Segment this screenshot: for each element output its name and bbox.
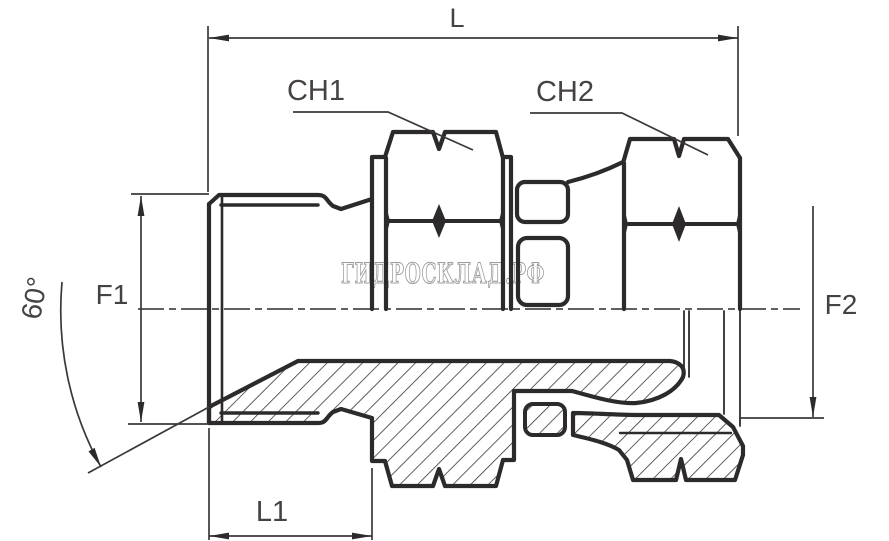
dim-hex1-wrench-label: CH1	[287, 75, 345, 107]
cone-construction-line	[88, 407, 209, 473]
arrow-L-right	[718, 35, 738, 42]
arrow-L1-left	[209, 533, 229, 540]
section-lower-half	[209, 309, 743, 486]
nut-section	[573, 413, 743, 480]
arrow-F1-up	[138, 196, 145, 216]
arrow-F1-down	[138, 402, 145, 422]
nut-nose-cone	[568, 162, 623, 182]
dim-stud-length-label: L1	[256, 496, 288, 528]
dim-hex2-wrench-label: CH2	[536, 76, 594, 108]
arrow-L1-right	[352, 533, 372, 540]
stud-outline	[209, 195, 372, 209]
through-hole-lines	[684, 311, 740, 426]
hex1-top	[385, 132, 503, 158]
groove-edge-upper	[517, 182, 568, 222]
arrow-L-left	[209, 35, 229, 42]
dim-overall-length-label: L	[449, 3, 464, 33]
fitting-half-section-drawing: ГИДРОСКЛАД.РФ	[0, 0, 889, 541]
arrow-angle-arc	[89, 448, 102, 467]
technical-drawing-canvas: ГИДРОСКЛАД.РФ	[0, 0, 889, 541]
dim-cone-angle-label: 60°	[15, 275, 53, 322]
hex1-center-diamond	[432, 204, 446, 238]
dim-left-thread-label: F1	[96, 279, 129, 310]
dim-right-thread-label: F2	[825, 289, 858, 320]
arrow-F2-down	[810, 397, 817, 417]
o-ring-section	[525, 404, 565, 435]
hex2-center-diamond	[672, 206, 686, 242]
